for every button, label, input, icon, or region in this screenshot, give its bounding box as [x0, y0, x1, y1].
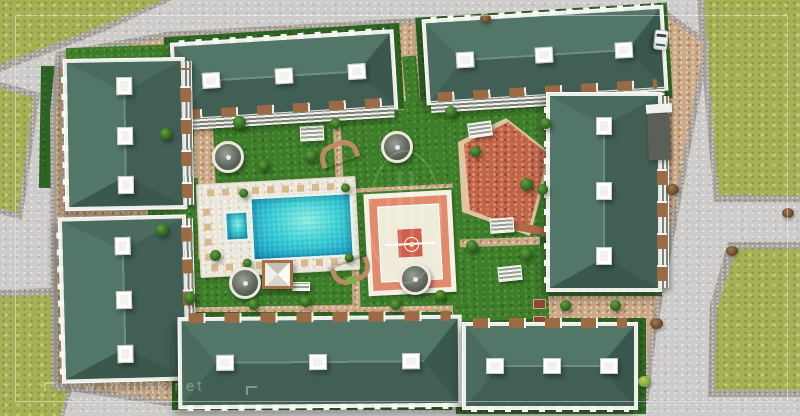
tree — [466, 240, 478, 252]
tree — [560, 300, 571, 311]
tree — [248, 299, 259, 310]
gazebo — [229, 267, 261, 299]
crop-mark — [246, 386, 257, 395]
roof-skylight — [600, 358, 618, 374]
flower-bed — [533, 299, 546, 309]
palm-tree — [239, 189, 248, 198]
road-bush — [480, 14, 491, 23]
tree — [435, 290, 446, 301]
roof-skylight — [216, 355, 234, 371]
building-top-right — [422, 5, 669, 106]
roof-skylight — [486, 358, 504, 374]
tree — [540, 118, 551, 129]
roof-skylight — [402, 353, 420, 369]
kiosk — [262, 260, 293, 289]
road-bush — [650, 318, 663, 329]
pergola-bench — [300, 125, 325, 141]
chimney-row — [471, 406, 629, 412]
roof-skylight — [614, 42, 633, 59]
balcony-row — [473, 318, 627, 328]
gazebo — [212, 141, 244, 173]
tree — [233, 116, 246, 129]
tree — [390, 299, 401, 310]
roof-skylight — [117, 345, 133, 363]
roof-skylight — [309, 354, 327, 370]
pergola-bench — [292, 282, 310, 291]
building-bottom-left — [178, 315, 463, 409]
roof-skylight — [456, 51, 475, 68]
roof-skylight — [596, 182, 612, 200]
tree — [470, 146, 481, 157]
pergola-bench — [497, 265, 522, 282]
tree — [300, 296, 311, 307]
building-left-lower — [58, 214, 190, 383]
tree — [520, 178, 533, 191]
car — [653, 29, 669, 50]
roof-skylight — [535, 47, 554, 64]
road-bush — [782, 208, 794, 218]
building-right — [546, 92, 662, 292]
tree — [184, 292, 196, 304]
roof-skylight — [118, 176, 134, 194]
roof-skylight — [114, 236, 130, 254]
watermark-logo — [368, 150, 442, 284]
roof-skylight — [116, 291, 132, 309]
roof-skylight — [348, 63, 367, 80]
tree — [330, 118, 341, 129]
road-bush — [666, 184, 679, 195]
roof-skylight — [117, 126, 133, 144]
tree — [160, 128, 172, 140]
road-bush — [638, 376, 651, 387]
watermark-logo-bars — [386, 168, 424, 266]
building-bottom-right — [462, 322, 638, 410]
entrance-canopy — [646, 103, 673, 114]
kids-pool — [224, 211, 250, 242]
roof-skylight — [116, 77, 132, 95]
roof-skylight — [543, 358, 561, 374]
crop-mark — [44, 382, 55, 391]
tree — [537, 184, 548, 195]
tree — [258, 160, 269, 171]
roof-skylight — [202, 72, 221, 89]
tree — [210, 250, 221, 261]
roof-skylight — [596, 247, 612, 265]
tree — [610, 300, 621, 311]
swimming-pool — [249, 192, 354, 261]
roof-skylight — [596, 117, 612, 135]
building-top-left — [170, 29, 398, 123]
tree — [305, 150, 317, 162]
lawn-circle — [346, 276, 358, 284]
entrance-block — [647, 114, 671, 161]
pergola-bench — [490, 217, 515, 234]
tree — [445, 106, 457, 118]
road-bush — [726, 246, 738, 256]
watermark-url: www.imtilak.net — [56, 378, 204, 395]
tree — [520, 248, 532, 260]
tree — [156, 224, 168, 236]
roof-skylight — [275, 67, 294, 84]
aerial-render-residential-complex: www.imtilak.net www.imtilak.net — [0, 0, 800, 416]
watermark-url-top: www.imtilak.net — [560, 0, 708, 11]
